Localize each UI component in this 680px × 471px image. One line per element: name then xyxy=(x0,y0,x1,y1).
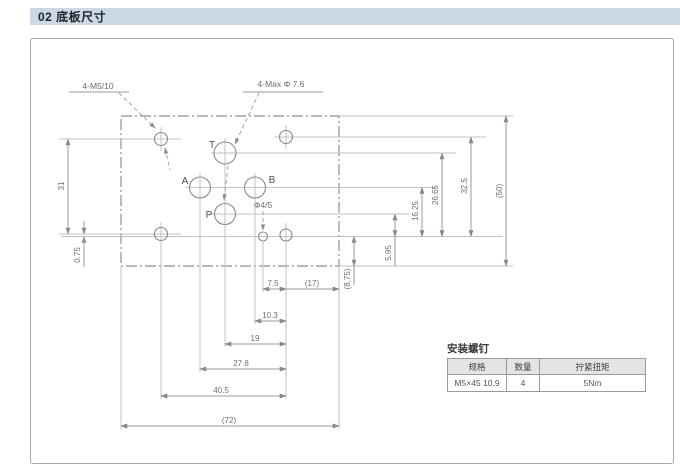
dim-right-8-75-text: (8.75) xyxy=(343,268,352,289)
screw-spec-value: M5×45 10.9 xyxy=(448,375,507,392)
screw-table-title: 安装螺钉 xyxy=(447,341,489,356)
screw-qty-value: 4 xyxy=(507,375,540,392)
dim-left-31: 31 xyxy=(57,139,68,234)
callout-bolt-holes: 4-M5/10 xyxy=(69,81,170,170)
section-header-bar: 02 底板尺寸 xyxy=(30,8,680,25)
callout-pin-hole-text: Φ4/5 xyxy=(254,200,273,210)
dim-bottom-17: (17) xyxy=(286,279,339,289)
port-t-label: T xyxy=(209,140,215,151)
dim-left-0-75-text: 0.75 xyxy=(73,247,82,263)
screw-table-header-torque: 拧紧扭矩 xyxy=(540,359,646,375)
dim-right-26-65: 26.65 xyxy=(431,153,442,237)
dim-bottom-27-8-text: 27.8 xyxy=(233,359,249,368)
callout-bolt-holes-text: 4-M5/10 xyxy=(82,81,113,91)
screw-table-data-row: M5×45 10.9 4 5Nm xyxy=(448,375,646,392)
port-p-label: P xyxy=(206,210,213,221)
dim-bottom-19-text: 19 xyxy=(251,334,260,343)
screw-table: 规格 数量 拧紧扭矩 M5×45 10.9 4 5Nm xyxy=(447,358,646,392)
dim-bottom-40-5: 40.5 xyxy=(161,386,286,396)
dim-bottom-19: 19 xyxy=(225,334,286,344)
dim-left-0-75: 0.75 xyxy=(73,221,109,267)
dim-right-8-75: (8.75) xyxy=(343,237,354,290)
dim-bottom-10-3-text: 10.3 xyxy=(262,311,278,320)
dim-right-32-5-text: 32.5 xyxy=(460,178,469,194)
screw-torque-value: 5Nm xyxy=(540,375,646,392)
callout-ports-max-text: 4-Max Φ 7.6 xyxy=(258,79,305,89)
drawing-panel: T A B P 4-M5/10 4-Max Φ 7.6 Φ4/5 xyxy=(30,38,674,464)
dim-right-5-95: 5.95 xyxy=(384,214,395,266)
centerlines xyxy=(59,116,513,429)
screw-table-header-row: 规格 数量 拧紧扭矩 xyxy=(448,359,646,375)
dim-right-32-5: 32.5 xyxy=(460,137,471,237)
dim-bottom-27-8: 27.8 xyxy=(200,359,286,369)
dim-bottom-7-5-text: 7.5 xyxy=(267,279,279,288)
dim-right-50: (50) xyxy=(495,116,506,266)
dim-right-16-25-text: 16.25 xyxy=(411,200,420,221)
dim-right-5-95-text: 5.95 xyxy=(384,245,393,261)
dim-left-31-text: 31 xyxy=(57,181,66,190)
dim-bottom-7-5: 7.5 xyxy=(263,279,286,289)
callout-pin-hole: Φ4/5 xyxy=(254,200,273,230)
dim-right-16-25: 16.25 xyxy=(411,188,422,237)
dim-bottom-40-5-text: 40.5 xyxy=(213,386,229,395)
dim-right-50-text: (50) xyxy=(495,184,504,199)
port-b-label: B xyxy=(269,175,276,186)
page: 02 底板尺寸 xyxy=(0,0,680,471)
section-title: 02 底板尺寸 xyxy=(30,8,106,25)
dim-bottom-17-text: (17) xyxy=(305,279,320,288)
dim-bottom-72: (72) xyxy=(121,416,339,426)
screw-table-header-qty: 数量 xyxy=(507,359,540,375)
port-a-label: A xyxy=(182,176,189,187)
dim-bottom-72-text: (72) xyxy=(222,416,237,425)
technical-drawing: T A B P 4-M5/10 4-Max Φ 7.6 Φ4/5 xyxy=(31,39,673,463)
screw-table-header-spec: 规格 xyxy=(448,359,507,375)
dim-bottom-10-3: 10.3 xyxy=(255,311,286,321)
dim-right-26-65-text: 26.65 xyxy=(431,184,440,205)
